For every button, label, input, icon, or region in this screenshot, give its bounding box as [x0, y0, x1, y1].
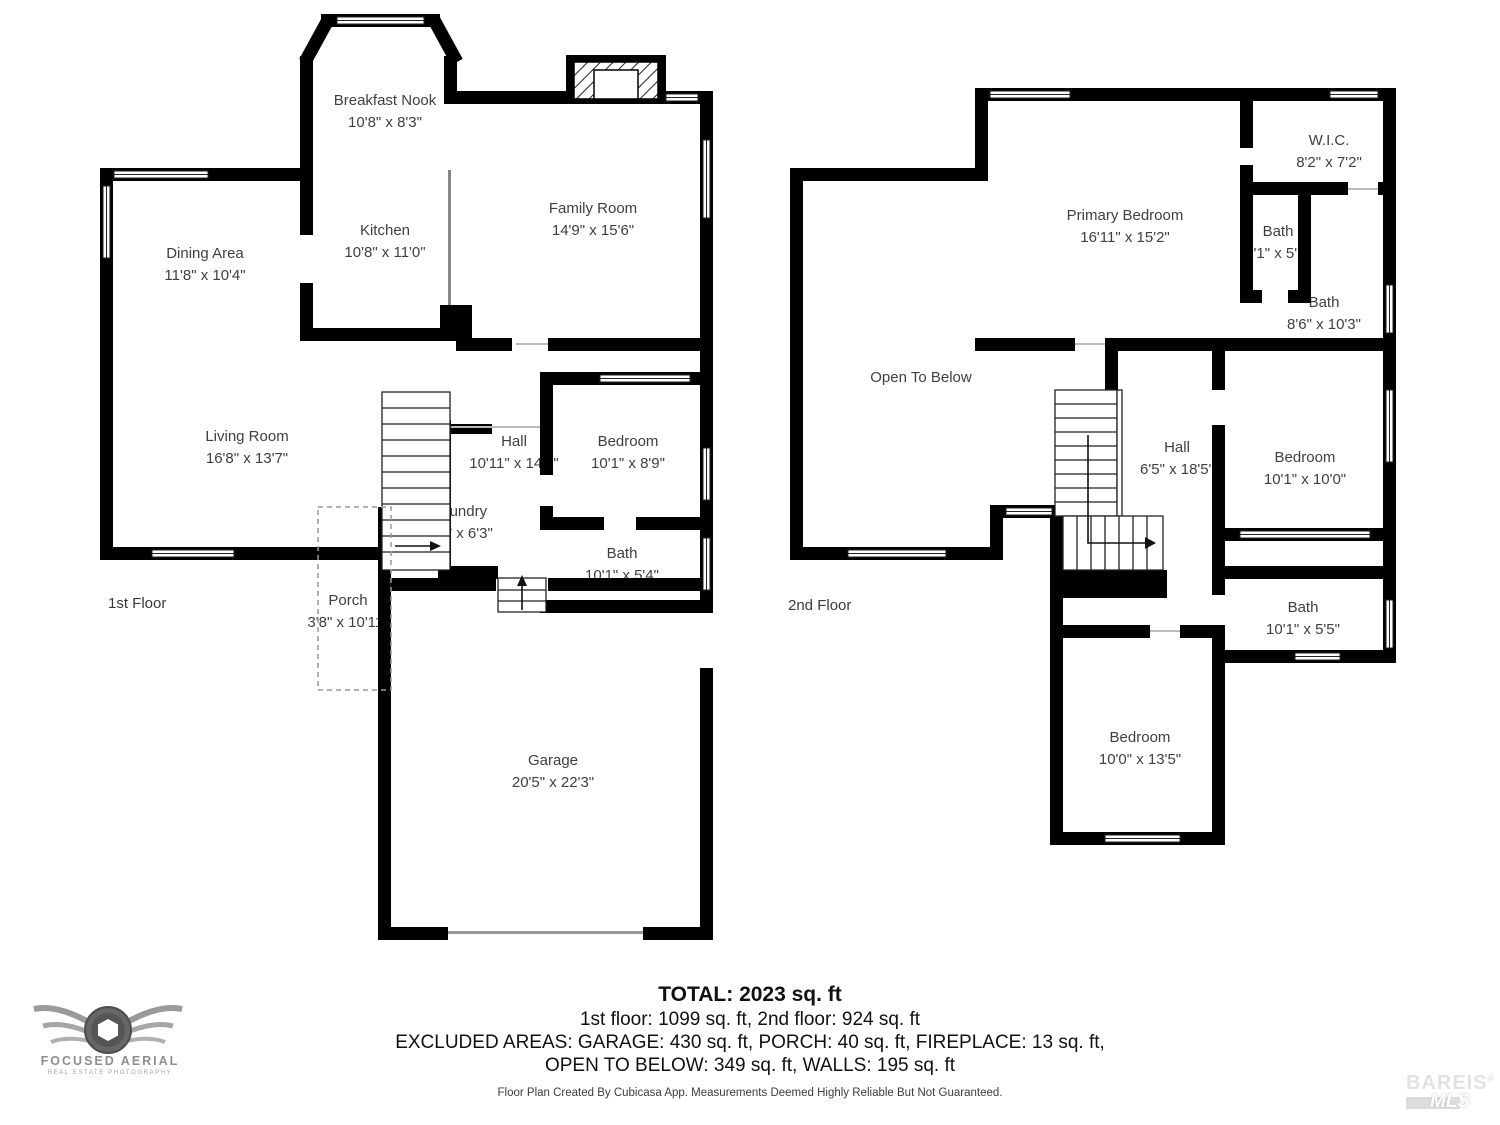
- room-label-hall-2f: Hall6'5" x 18'5": [1140, 437, 1214, 481]
- room-label-garage: Garage20'5" x 22'3": [512, 750, 594, 794]
- floor1-tag: 1st Floor: [108, 595, 166, 612]
- floor2-tag: 2nd Floor: [788, 597, 851, 614]
- labels-layer: Breakfast Nook10'8" x 8'3" Kitchen10'8" …: [0, 0, 1500, 1125]
- room-label-hall-1f: Hall10'11" x 14'1": [469, 431, 559, 475]
- room-label-bedroom-right-2f: Bedroom10'1" x 10'0": [1264, 447, 1346, 491]
- room-label-bedroom-1f: Bedroom10'1" x 8'9": [591, 431, 665, 475]
- room-label-breakfast-nook: Breakfast Nook10'8" x 8'3": [334, 90, 437, 134]
- room-label-bath-small-2f: Bath3'1" x 5'7": [1245, 221, 1311, 265]
- bareis-mls-watermark: BAREIS® MLS: [1406, 1072, 1498, 1111]
- logo-tagline: REAL ESTATE PHOTOGRAPHY: [30, 1070, 190, 1076]
- room-label-kitchen: Kitchen10'8" x 11'0": [344, 220, 425, 264]
- room-label-laundry: Laundry7'9" x 6'3": [427, 501, 493, 545]
- logo-name: FOCUSED AERIAL: [30, 1054, 190, 1068]
- room-label-living-room: Living Room16'8" x 13'7": [205, 426, 288, 470]
- room-label-wic: W.I.C.8'2" x 7'2": [1296, 130, 1362, 174]
- floorplan-page: Breakfast Nook10'8" x 8'3" Kitchen10'8" …: [0, 0, 1500, 1125]
- room-label-porch: Porch3'8" x 10'11": [307, 590, 388, 634]
- room-label-bath-1f: Bath10'1" x 5'4": [585, 543, 659, 587]
- room-label-family-room: Family Room14'9" x 15'6": [549, 198, 637, 242]
- room-label-primary-bedroom: Primary Bedroom16'11" x 15'2": [1067, 205, 1184, 249]
- room-label-bedroom-bottom-2f: Bedroom10'0" x 13'5": [1099, 727, 1181, 771]
- room-label-bath-big-2f: Bath8'6" x 10'3": [1287, 292, 1361, 336]
- room-label-dining-area: Dining Area11'8" x 10'4": [164, 243, 245, 287]
- room-label-bath-2f: Bath10'1" x 5'5": [1266, 597, 1340, 641]
- room-label-open-to-below: Open To Below: [870, 367, 971, 389]
- focused-aerial-logo: FOCUSED AERIAL REAL ESTATE PHOTOGRAPHY: [30, 998, 190, 1076]
- watermark-sub: MLS: [1430, 1091, 1470, 1113]
